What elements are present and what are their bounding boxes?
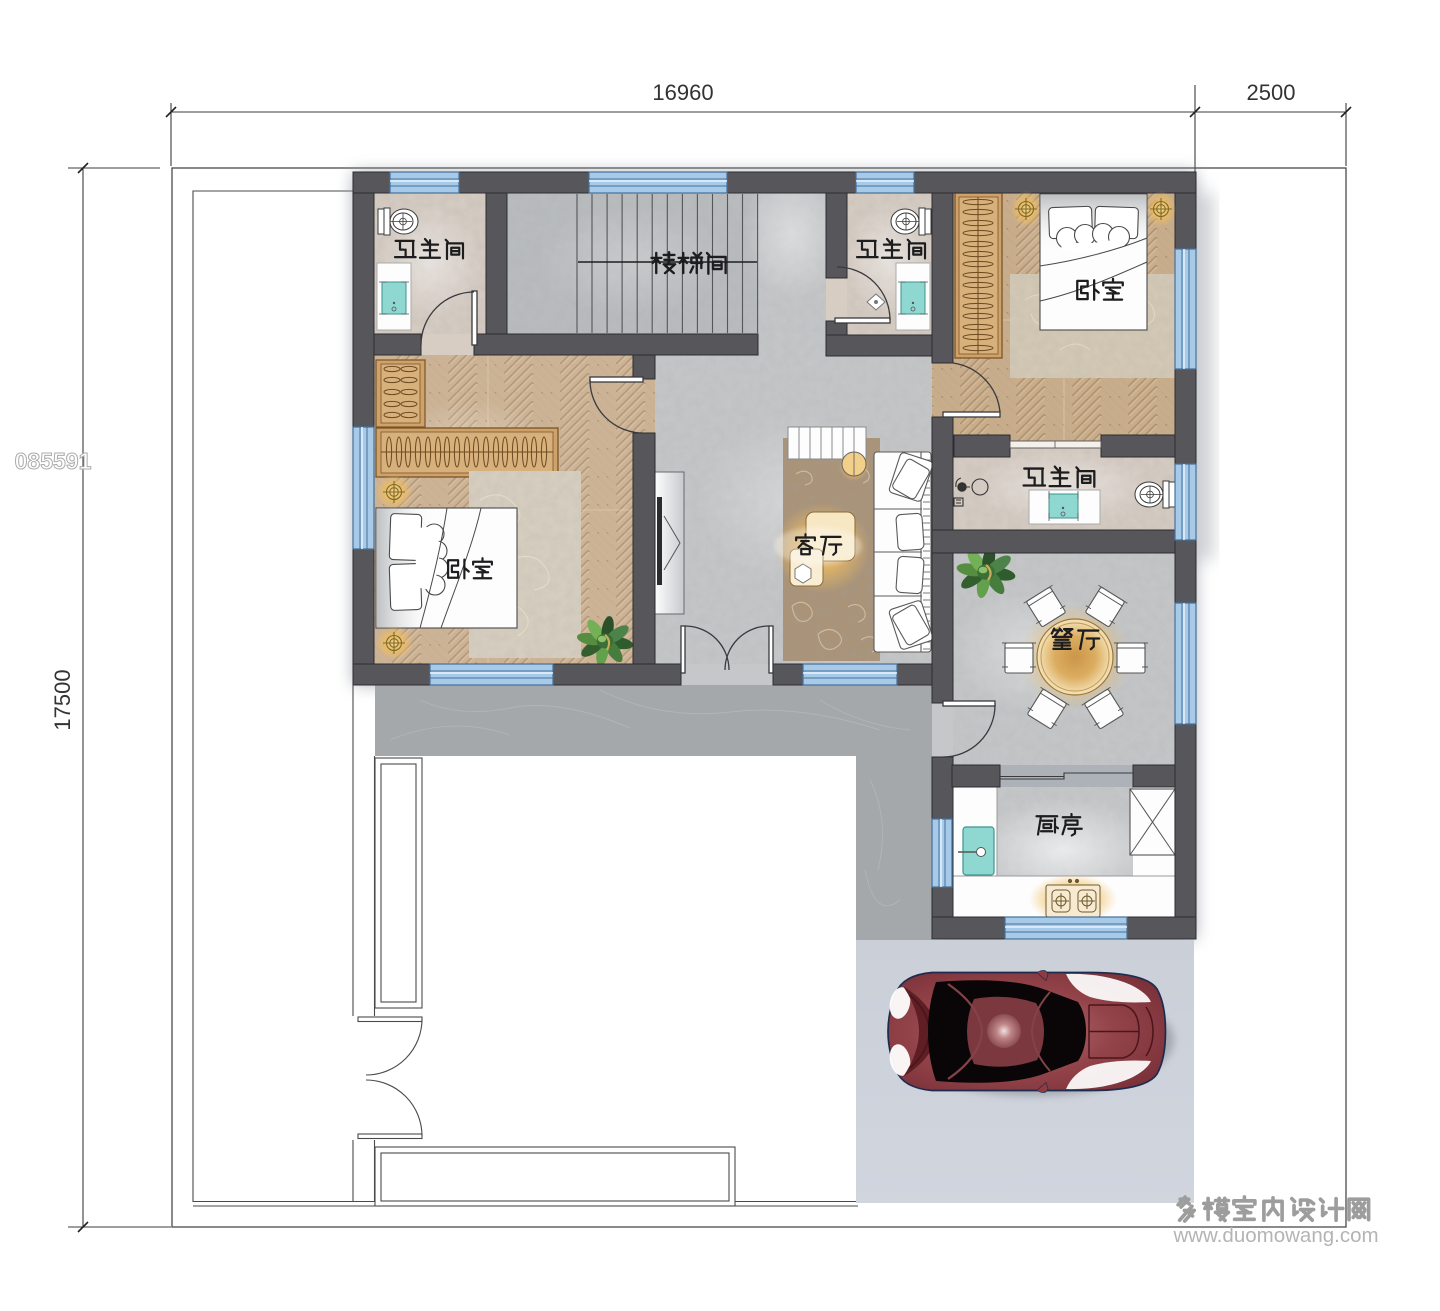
- svg-text:www.duomowang.com: www.duomowang.com: [1172, 1224, 1378, 1247]
- svg-text:16960: 16960: [652, 80, 713, 105]
- svg-text:2500: 2500: [1247, 80, 1296, 105]
- svg-text:085591: 085591: [15, 448, 92, 474]
- svg-text:17500: 17500: [50, 669, 75, 730]
